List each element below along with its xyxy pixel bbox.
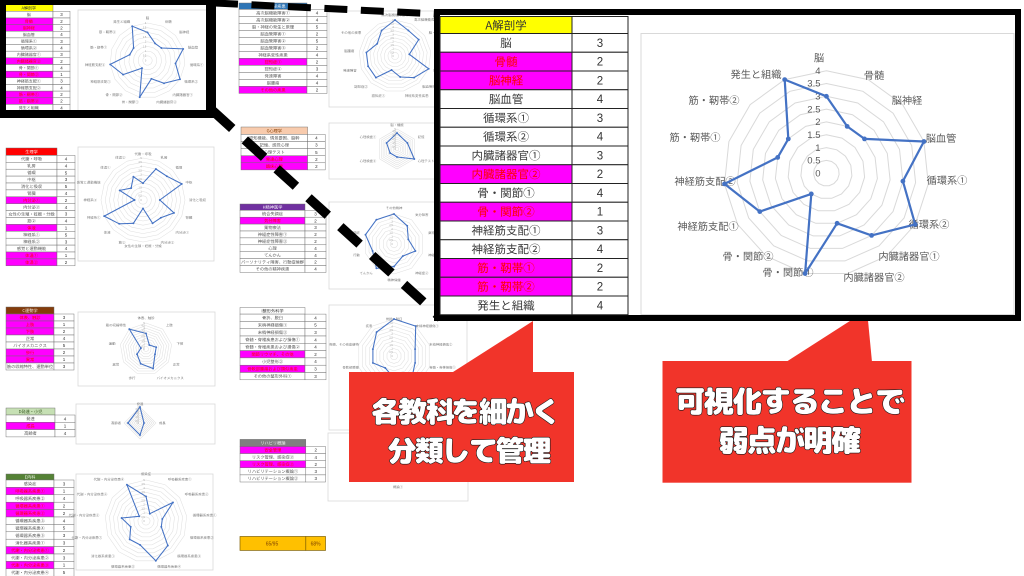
svg-text:4: 4: [597, 244, 604, 256]
svg-text:3.5: 3.5: [389, 217, 393, 220]
svg-text:4.5: 4.5: [390, 23, 394, 26]
svg-text:0.5: 0.5: [141, 345, 145, 348]
svg-text:3.5: 3.5: [143, 27, 147, 30]
svg-text:2.5: 2.5: [807, 104, 820, 115]
svg-text:0.5: 0.5: [143, 55, 147, 58]
svg-text:3.5: 3.5: [807, 79, 820, 90]
svg-text:3: 3: [597, 225, 603, 237]
svg-text:65/95: 65/95: [266, 542, 279, 548]
svg-text:1.5: 1.5: [390, 44, 394, 47]
svg-text:0.5: 0.5: [807, 156, 820, 167]
svg-text:4: 4: [815, 66, 820, 77]
svg-text:3.5: 3.5: [141, 330, 145, 333]
svg-text:2.5: 2.5: [138, 178, 142, 181]
svg-text:2: 2: [597, 282, 603, 294]
svg-text:0.5: 0.5: [141, 516, 145, 519]
svg-text:68%: 68%: [311, 542, 322, 548]
svg-text:3: 3: [597, 113, 603, 125]
svg-text:4.5: 4.5: [389, 322, 393, 325]
svg-text:2.5: 2.5: [141, 335, 145, 338]
svg-text:4: 4: [597, 132, 604, 144]
svg-text:3: 3: [597, 38, 603, 50]
svg-text:2: 2: [597, 75, 603, 87]
svg-text:3.5: 3.5: [389, 329, 393, 332]
svg-text:1.5: 1.5: [138, 186, 142, 189]
svg-text:3.5: 3.5: [141, 491, 145, 494]
svg-text:4: 4: [597, 94, 604, 106]
svg-text:2.5: 2.5: [389, 224, 393, 227]
svg-text:2.5: 2.5: [390, 37, 394, 40]
svg-text:1.5: 1.5: [389, 344, 393, 347]
svg-text:2: 2: [597, 169, 603, 181]
svg-text:4.5: 4.5: [138, 161, 142, 164]
svg-text:1: 1: [597, 207, 603, 219]
svg-text:0.5: 0.5: [390, 51, 394, 54]
svg-text:0.5: 0.5: [138, 195, 142, 198]
svg-text:1.5: 1.5: [143, 45, 147, 48]
svg-text:3.5: 3.5: [138, 170, 142, 173]
svg-text:2.5: 2.5: [389, 336, 393, 339]
svg-text:3.5: 3.5: [390, 30, 394, 33]
svg-text:3: 3: [597, 150, 603, 162]
svg-text:1.5: 1.5: [807, 130, 820, 141]
svg-text:4.5: 4.5: [141, 483, 145, 486]
svg-text:4: 4: [597, 300, 604, 312]
svg-text:0.5: 0.5: [389, 351, 393, 354]
svg-text:2: 2: [597, 57, 603, 69]
svg-text:1: 1: [815, 143, 820, 154]
svg-text:2: 2: [597, 263, 603, 275]
svg-text:1.5: 1.5: [141, 340, 145, 343]
svg-text:2.5: 2.5: [143, 36, 147, 39]
svg-text:4: 4: [597, 188, 604, 200]
svg-text:1.5: 1.5: [389, 232, 393, 235]
svg-text:1.5: 1.5: [141, 508, 145, 511]
svg-text:4.5: 4.5: [141, 325, 145, 328]
svg-text:0.5: 0.5: [389, 239, 393, 242]
svg-text:2.5: 2.5: [141, 499, 145, 502]
svg-text:2: 2: [815, 117, 820, 128]
svg-text:0: 0: [815, 168, 820, 179]
